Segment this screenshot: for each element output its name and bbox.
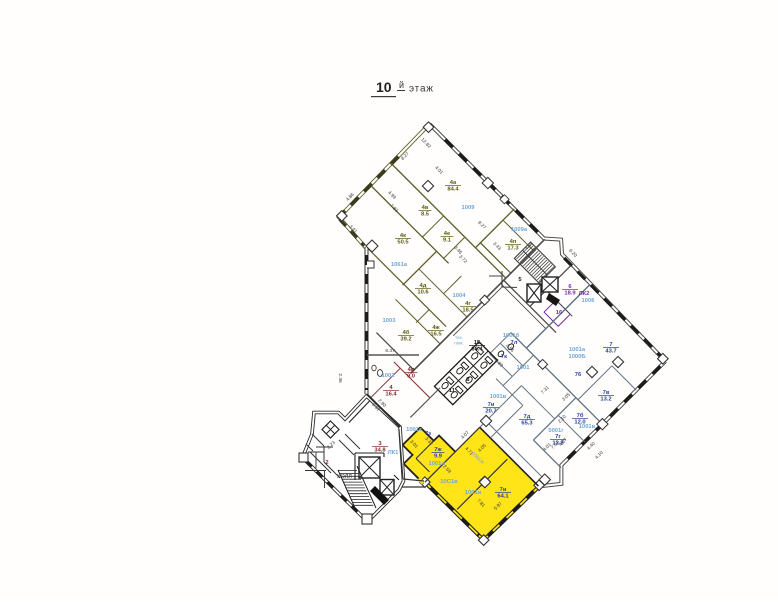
svg-text:2: 2 <box>325 460 328 466</box>
svg-text:43.7: 43.7 <box>605 349 616 355</box>
svg-text:7д: 7д <box>524 414 531 420</box>
svg-text:18.5: 18.5 <box>462 308 474 314</box>
svg-text:7: 7 <box>609 342 612 348</box>
svg-text:15: 15 <box>474 340 481 346</box>
svg-text:50.5: 50.5 <box>397 240 409 246</box>
svg-text:4в: 4в <box>422 205 429 211</box>
svg-text:39.2: 39.2 <box>400 337 411 343</box>
svg-text:10.6: 10.6 <box>417 290 429 296</box>
svg-text:2.36: 2.36 <box>337 373 343 383</box>
svg-text:13.2: 13.2 <box>600 397 611 403</box>
svg-text:этаж: этаж <box>409 84 434 95</box>
svg-text:4к: 4к <box>400 233 406 239</box>
svg-text:1001б: 1001б <box>503 332 520 339</box>
svg-text:7г: 7г <box>555 434 561 440</box>
svg-text:10С1в: 10С1в <box>440 479 458 485</box>
svg-text:1001в: 1001в <box>490 394 507 400</box>
svg-text:1001з: 1001з <box>406 427 422 433</box>
svg-text:16.5: 16.5 <box>430 332 442 338</box>
svg-text:ХОЛЛ: ХОЛЛ <box>337 474 352 480</box>
svg-text:пом.: пом. <box>454 341 463 346</box>
svg-text:8.37: 8.37 <box>385 348 395 354</box>
svg-text:7з: 7з <box>425 431 431 437</box>
svg-text:4е: 4е <box>444 231 451 237</box>
svg-text:7к: 7к <box>501 354 507 360</box>
svg-text:й: й <box>399 80 404 90</box>
svg-text:20.7: 20.7 <box>485 409 496 415</box>
svg-text:1001и: 1001и <box>465 490 482 496</box>
svg-text:18.9: 18.9 <box>564 291 576 297</box>
svg-text:4г: 4г <box>465 301 471 307</box>
svg-text:7б: 7б <box>577 412 584 419</box>
svg-text:76: 76 <box>575 372 582 378</box>
svg-text:17.3: 17.3 <box>507 246 519 252</box>
svg-text:9.1: 9.1 <box>443 238 452 244</box>
svg-text:7и: 7и <box>488 402 495 408</box>
svg-text:1061а: 1061а <box>391 262 408 268</box>
svg-text:1001: 1001 <box>517 365 531 371</box>
svg-text:5001г: 5001г <box>548 428 564 434</box>
svg-text:1000Б: 1000Б <box>568 354 585 360</box>
svg-text:1002: 1002 <box>382 373 395 379</box>
svg-text:34.8: 34.8 <box>374 448 386 454</box>
svg-text:84.4: 84.4 <box>447 187 459 193</box>
svg-text:7и: 7и <box>500 487 507 493</box>
svg-text:64.1: 64.1 <box>497 494 509 500</box>
svg-text:4и: 4и <box>408 367 415 373</box>
svg-text:9.9: 9.9 <box>434 454 443 460</box>
svg-text:7л: 7л <box>511 340 518 346</box>
svg-text:16: 16 <box>556 310 563 316</box>
svg-text:11: 11 <box>449 388 456 394</box>
svg-text:4п: 4п <box>510 239 517 245</box>
svg-text:1009: 1009 <box>462 205 476 211</box>
svg-text:9.0: 9.0 <box>407 374 415 380</box>
svg-text:10: 10 <box>376 79 392 95</box>
svg-text:4д: 4д <box>420 283 427 289</box>
svg-text:4а: 4а <box>450 180 457 186</box>
svg-text:65.3: 65.3 <box>521 421 533 427</box>
svg-text:1001а: 1001а <box>569 347 586 353</box>
svg-text:ЛК1: ЛК1 <box>388 450 400 456</box>
svg-text:ЛК2: ЛК2 <box>579 291 590 297</box>
svg-text:66.4: 66.4 <box>471 347 483 353</box>
svg-text:7ж: 7ж <box>434 447 442 453</box>
svg-text:1006: 1006 <box>582 298 596 304</box>
svg-text:16.4: 16.4 <box>385 392 397 398</box>
svg-text:1004: 1004 <box>453 293 467 299</box>
svg-text:4б: 4б <box>403 329 410 336</box>
svg-text:7в: 7в <box>603 390 610 396</box>
svg-text:1009а: 1009а <box>511 227 528 233</box>
svg-text:4ж: 4ж <box>432 325 440 331</box>
svg-text:1003: 1003 <box>383 318 397 324</box>
svg-text:тех.: тех. <box>455 335 463 340</box>
svg-text:1001в: 1001в <box>579 424 596 430</box>
svg-text:8.5: 8.5 <box>421 212 430 218</box>
